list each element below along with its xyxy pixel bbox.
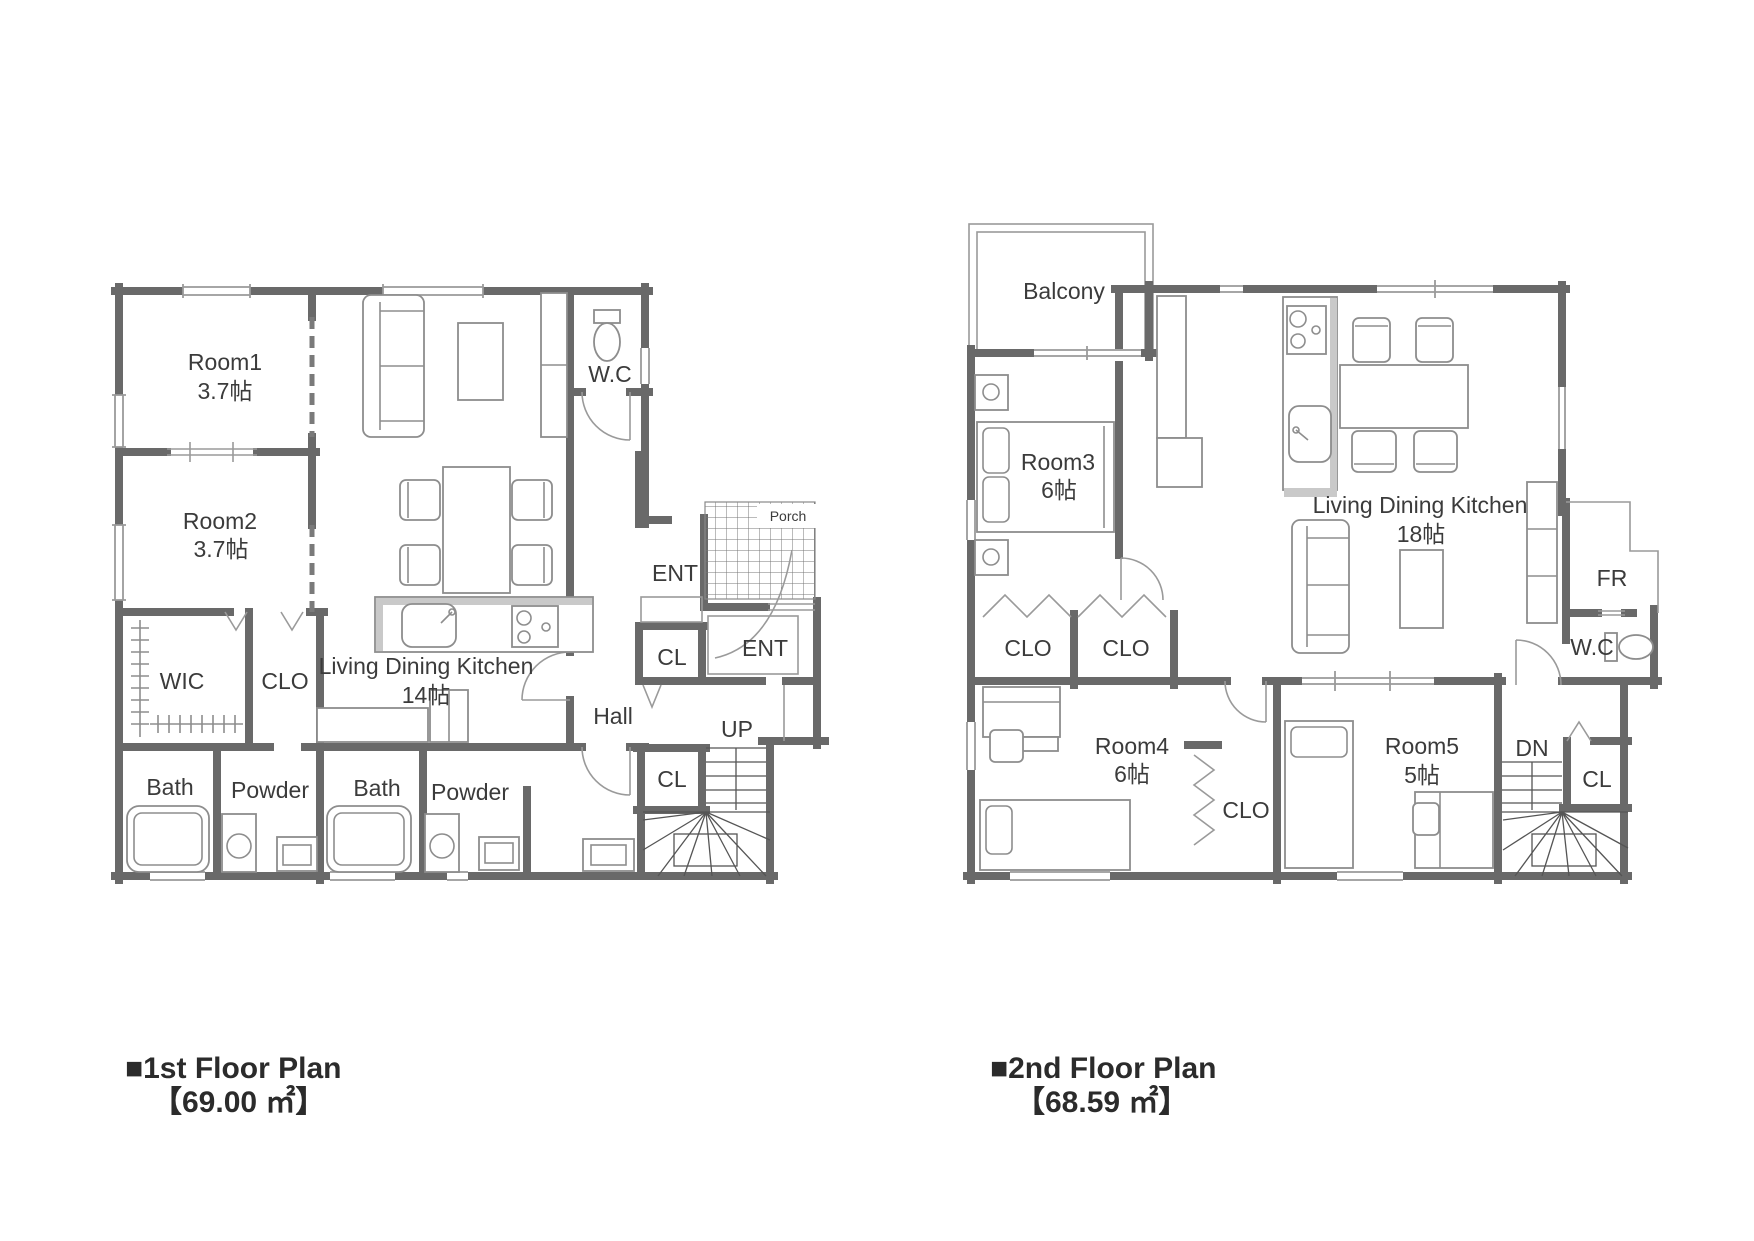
second-floor-caption-area: 【68.59 ㎡】 <box>1015 1085 1188 1119</box>
cl-upper-label: CL <box>657 644 687 670</box>
ldk-size-label: 14帖 <box>402 682 451 708</box>
b바athtub-left <box>127 806 209 872</box>
first-floor-caption-area: 【69.00 ㎡】 <box>152 1085 325 1119</box>
room2-size-label: 3.7帖 <box>194 536 249 562</box>
room4-desk <box>983 687 1060 762</box>
fr-label: FR <box>1597 565 1628 591</box>
room4-bed <box>980 800 1130 870</box>
up-label: UP <box>721 716 753 742</box>
wc-door-arc <box>582 392 630 440</box>
sofa <box>1292 520 1349 653</box>
room5-desk <box>1413 792 1493 868</box>
bath-left-label: Bath <box>146 774 193 800</box>
second-floor-furniture <box>975 296 1653 870</box>
wc-label: W.C <box>1570 634 1613 660</box>
ent-upper-label: ENT <box>652 560 698 586</box>
kitchen-sink <box>402 604 456 647</box>
coffee-table <box>1400 550 1443 628</box>
room5-size-label: 5帖 <box>1404 762 1440 788</box>
first-floor-doors <box>522 392 630 795</box>
dining-set <box>1340 318 1468 472</box>
corridor-door-arc <box>1516 640 1561 685</box>
first-floor-caption-title: ■1st Floor Plan <box>125 1052 342 1085</box>
fr-outline <box>1566 502 1658 613</box>
hall-powder-door-arc <box>582 747 630 795</box>
clo-left-label: CLO <box>1004 635 1051 661</box>
cl-label: CL <box>1582 766 1612 792</box>
ldk-label: Living Dining Kitchen <box>319 653 534 679</box>
bathtub-right <box>327 806 411 872</box>
kitchen-island <box>1283 297 1337 497</box>
floor-plan-page: Room1 3.7帖 Room2 3.7帖 W.C ENT Porch ENT … <box>0 0 1754 1241</box>
nightstand-bottom <box>975 540 1008 575</box>
room5-bed <box>1285 721 1353 868</box>
second-floor-plan: Balcony Room3 6帖 Living Dining Kitchen 1… <box>965 224 1658 882</box>
cl-lower-label: CL <box>657 766 687 792</box>
refrigerator <box>1157 296 1186 438</box>
toilet <box>594 310 620 361</box>
captions: ■1st Floor Plan 【69.00 ㎡】 ■2nd Floor Pla… <box>125 1052 1216 1119</box>
kitchen-counter <box>375 597 593 652</box>
porch-label: Porch <box>770 508 807 524</box>
room3-size-label: 6帖 <box>1041 477 1077 503</box>
room4-door-arc <box>1225 681 1266 722</box>
second-floor-caption-title: ■2nd Floor Plan <box>990 1052 1216 1085</box>
clo-right-label: CLO <box>1102 635 1149 661</box>
clo-label: CLO <box>261 668 308 694</box>
stove <box>512 606 558 647</box>
dining-set <box>400 467 552 593</box>
room4-label: Room4 <box>1095 733 1169 759</box>
first-floor-plan: Room1 3.7帖 Room2 3.7帖 W.C ENT Porch ENT … <box>112 284 825 882</box>
washer-right <box>425 814 459 872</box>
stove <box>1287 306 1326 354</box>
wc-label: W.C <box>588 361 631 387</box>
ldk-size-label: 18帖 <box>1397 521 1446 547</box>
vanity-hall <box>583 839 634 871</box>
room1-label: Room1 <box>188 349 262 375</box>
kitchen-sink <box>1289 406 1331 462</box>
room2-label: Room2 <box>183 508 257 534</box>
washer-left <box>222 814 256 872</box>
dn-label: DN <box>1515 735 1548 761</box>
room5-label: Room5 <box>1385 733 1459 759</box>
coffee-table <box>458 323 503 400</box>
ldk-label: Living Dining Kitchen <box>1313 492 1528 518</box>
powder-left-label: Powder <box>231 777 309 803</box>
tall-cabinet <box>1527 482 1557 623</box>
back-counter <box>317 708 428 742</box>
vanity-left <box>277 837 317 871</box>
kitchen-cabinet <box>1157 438 1202 487</box>
room3-label: Room3 <box>1021 449 1095 475</box>
ent-lower-label: ENT <box>742 635 788 661</box>
hall-label: Hall <box>593 703 633 729</box>
tv-board <box>541 293 567 437</box>
balcony-label: Balcony <box>1023 278 1105 304</box>
sofa <box>363 295 424 437</box>
wic-label: WIC <box>160 668 205 694</box>
room4-size-label: 6帖 <box>1114 761 1150 787</box>
vanity-right <box>479 837 519 870</box>
entrance-step <box>641 597 702 622</box>
nightstand-top <box>975 375 1008 410</box>
room3-door-arc <box>1121 558 1163 600</box>
room1-size-label: 3.7帖 <box>198 378 253 404</box>
floor-plan-canvas: Room1 3.7帖 Room2 3.7帖 W.C ENT Porch ENT … <box>0 0 1754 1241</box>
clo-mid-label: CLO <box>1222 797 1269 823</box>
powder-right-label: Powder <box>431 779 509 805</box>
bath-right-label: Bath <box>353 775 400 801</box>
